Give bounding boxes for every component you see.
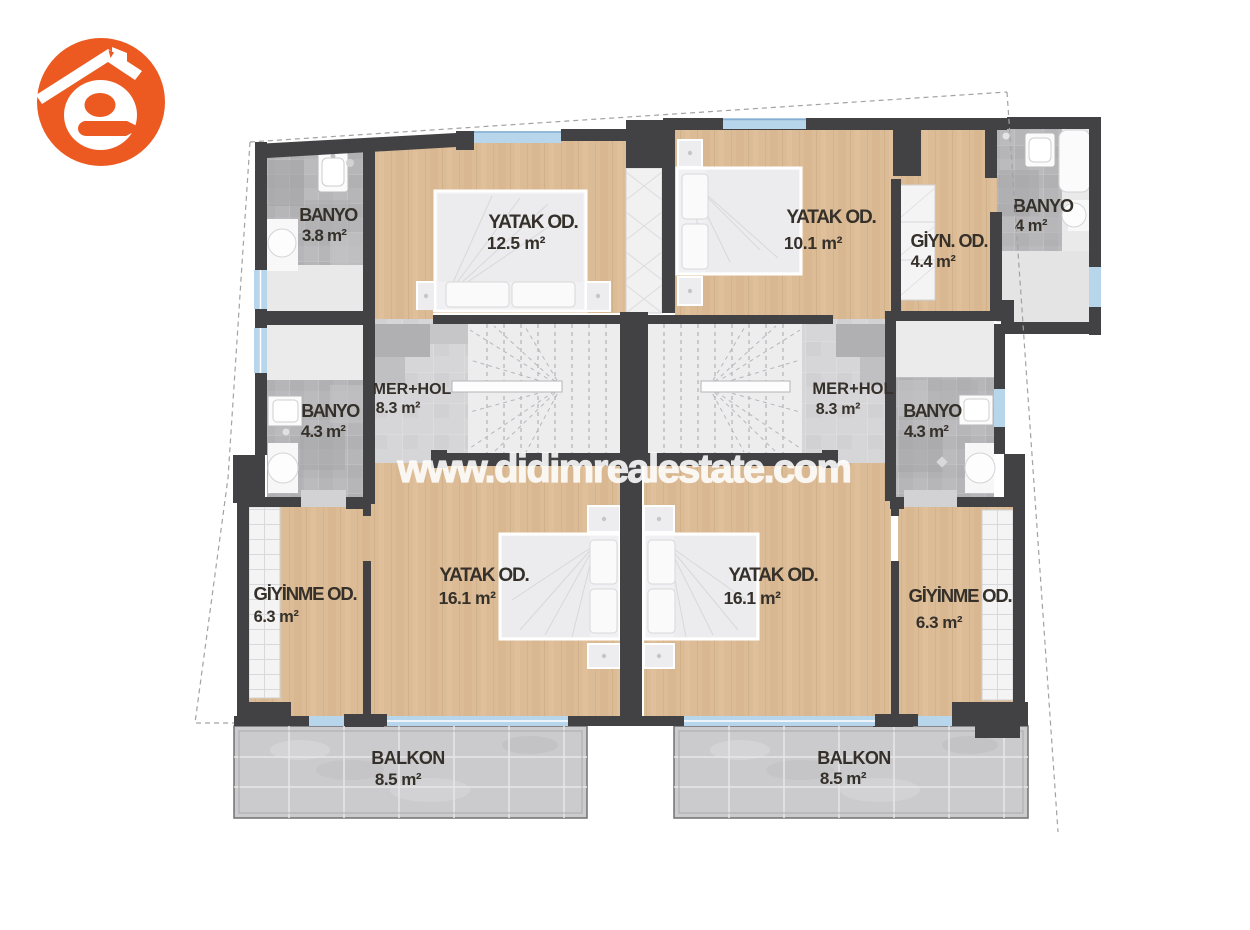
svg-text:4 m²: 4 m² [1015,217,1048,235]
svg-text:6.3 m²: 6.3 m² [254,608,300,626]
svg-text:YATAK OD.: YATAK OD. [786,207,875,228]
svg-text:GİYİNME OD.: GİYİNME OD. [254,583,357,604]
svg-text:8.5 m²: 8.5 m² [375,770,422,789]
svg-text:6.3 m²: 6.3 m² [916,613,963,632]
svg-text:BANYO: BANYO [903,401,962,421]
svg-text:4.3 m²: 4.3 m² [301,422,346,441]
svg-text:www.didimrealestate.com: www.didimrealestate.com [397,447,851,491]
svg-text:16.1 m²: 16.1 m² [439,588,496,608]
svg-text:YATAK OD.: YATAK OD. [488,212,577,233]
svg-text:BALKON: BALKON [817,748,890,768]
svg-text:MER+HOL: MER+HOL [812,380,893,398]
svg-text:BALKON: BALKON [371,748,444,768]
svg-text:16.1 m²: 16.1 m² [724,588,781,608]
svg-text:YATAK OD.: YATAK OD. [728,565,817,586]
svg-text:4.3 m²: 4.3 m² [904,422,949,441]
svg-text:8.3 m²: 8.3 m² [816,401,860,418]
svg-text:GİYN. OD.: GİYN. OD. [910,231,987,251]
svg-text:MER+HOL: MER+HOL [373,381,452,398]
svg-text:8.3 m²: 8.3 m² [376,400,420,417]
svg-text:8.5 m²: 8.5 m² [820,769,867,788]
svg-text:BANYO: BANYO [1013,196,1074,216]
svg-text:4.4 m²: 4.4 m² [911,253,957,271]
svg-text:BANYO: BANYO [299,205,358,225]
svg-text:GİYİNME OD.: GİYİNME OD. [909,585,1012,606]
svg-text:YATAK OD.: YATAK OD. [439,565,528,586]
svg-text:BANYO: BANYO [301,401,360,421]
svg-text:3.8 m²: 3.8 m² [302,226,347,245]
svg-text:10.1 m²: 10.1 m² [784,233,843,253]
svg-text:12.5 m²: 12.5 m² [487,233,546,253]
